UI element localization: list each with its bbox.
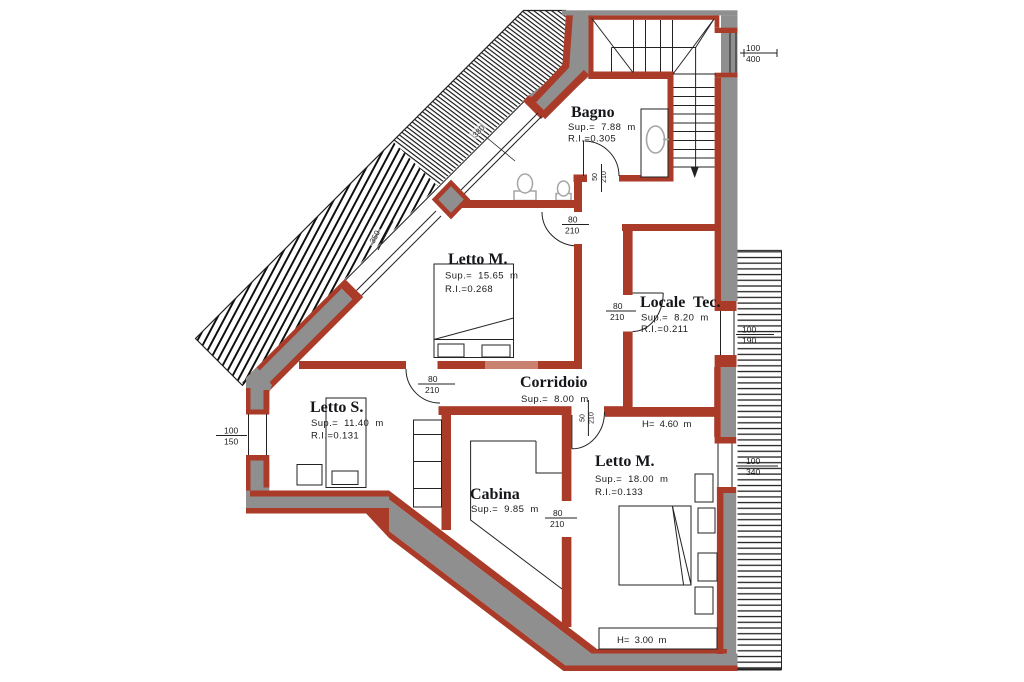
svg-text:Locale Tec.: Locale Tec. <box>640 294 720 311</box>
svg-text:Cabina: Cabina <box>470 486 520 503</box>
svg-text:100: 100 <box>742 325 756 335</box>
svg-text:Sup.= 7.88 m: Sup.= 7.88 m <box>568 122 636 133</box>
svg-text:Letto M.: Letto M. <box>595 453 655 470</box>
svg-text:Sup.= 9.85 m: Sup.= 9.85 m <box>471 504 539 515</box>
svg-text:80: 80 <box>568 215 578 225</box>
svg-text:H= 4.60 m: H= 4.60 m <box>642 419 691 430</box>
svg-text:R.I.=0.268: R.I.=0.268 <box>445 284 493 295</box>
svg-text:210: 210 <box>550 519 564 529</box>
svg-text:Bagno: Bagno <box>571 104 615 121</box>
svg-text:Sup.= 18.00 m: Sup.= 18.00 m <box>595 474 668 485</box>
svg-text:R.I.=0.211: R.I.=0.211 <box>641 324 688 335</box>
svg-text:R.I.=0.131: R.I.=0.131 <box>311 431 359 442</box>
svg-text:Sup.= 8.00 m: Sup.= 8.00 m <box>521 394 589 405</box>
svg-text:210: 210 <box>610 312 624 322</box>
svg-text:150: 150 <box>224 437 238 447</box>
svg-text:210: 210 <box>589 412 596 424</box>
svg-text:H= 3.00 m: H= 3.00 m <box>617 635 666 646</box>
svg-text:Sup.= 8.20 m: Sup.= 8.20 m <box>641 313 709 324</box>
svg-text:Sup.= 11.40 m: Sup.= 11.40 m <box>311 418 384 429</box>
svg-text:80: 80 <box>613 301 623 311</box>
svg-text:50: 50 <box>592 173 599 181</box>
svg-text:80: 80 <box>428 374 438 384</box>
svg-text:210: 210 <box>601 171 608 183</box>
svg-text:Corridoio: Corridoio <box>520 374 588 391</box>
svg-text:100: 100 <box>746 43 760 53</box>
svg-text:50: 50 <box>580 414 587 422</box>
svg-text:210: 210 <box>565 226 579 236</box>
svg-text:340: 340 <box>746 467 760 477</box>
svg-text:Letto M.: Letto M. <box>448 251 508 268</box>
svg-text:190: 190 <box>742 336 756 346</box>
svg-text:Letto S.: Letto S. <box>310 399 363 416</box>
svg-text:400: 400 <box>746 54 760 64</box>
svg-text:100: 100 <box>746 456 760 466</box>
svg-text:100: 100 <box>224 426 238 436</box>
svg-text:Sup.= 15.65 m: Sup.= 15.65 m <box>445 271 518 282</box>
svg-text:R.I.=0.305: R.I.=0.305 <box>568 134 616 145</box>
svg-text:80: 80 <box>553 508 563 518</box>
svg-text:R.I.=0.133: R.I.=0.133 <box>595 487 643 498</box>
svg-text:210: 210 <box>425 385 439 395</box>
